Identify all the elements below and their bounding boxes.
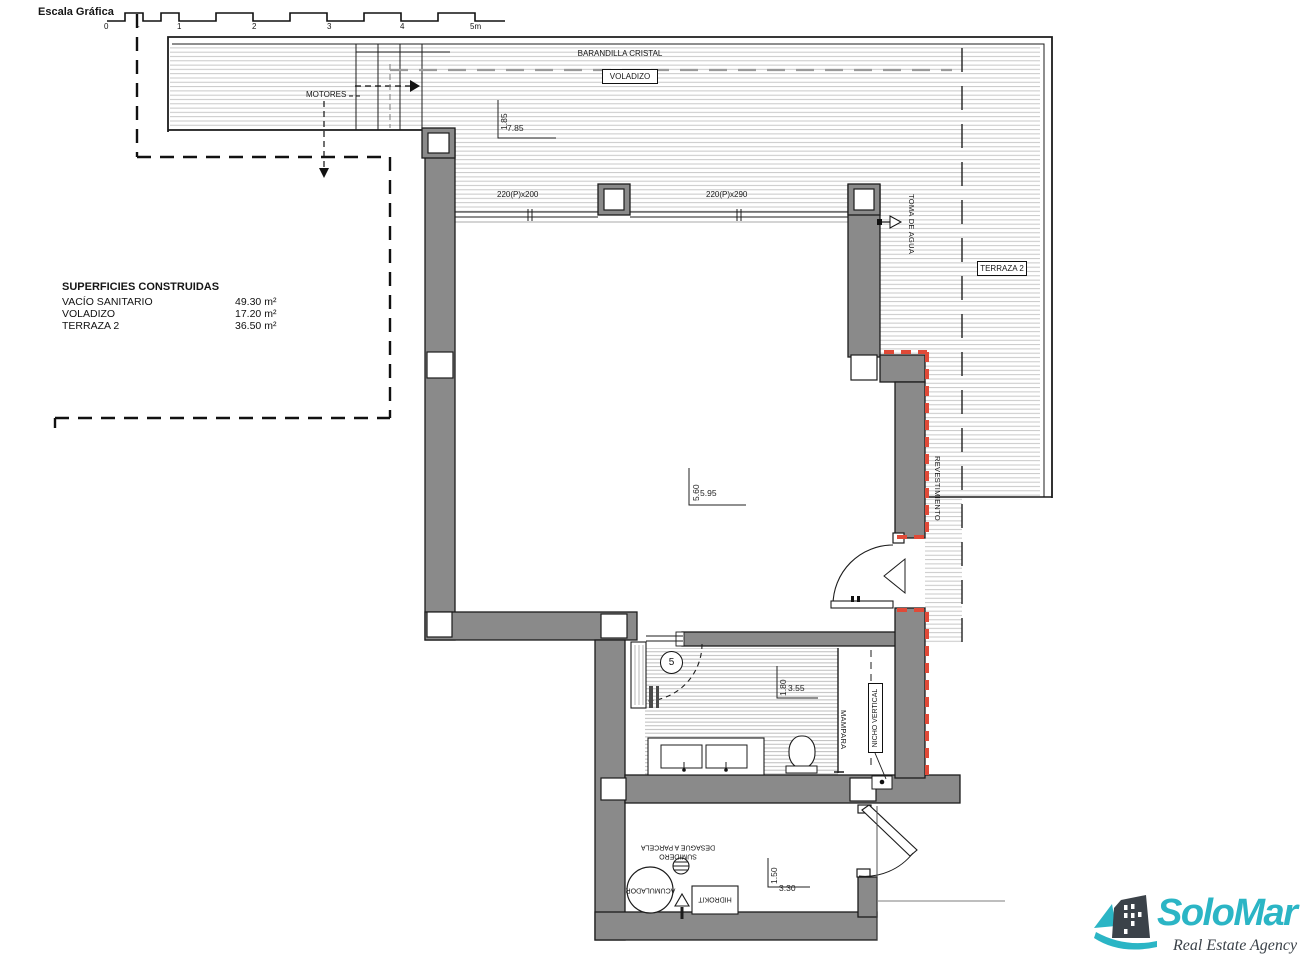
area-name: VOLADIZO xyxy=(62,308,115,320)
room-number-badge: 5 xyxy=(660,651,683,674)
area-value: 49.30 m² xyxy=(235,296,276,308)
logo-tagline: Real Estate Agency xyxy=(1173,938,1297,955)
sumidero-label: SUMIDERO xyxy=(628,852,728,859)
scale-bar xyxy=(107,13,505,21)
terraza-2-label: TERRAZA 2 xyxy=(977,261,1027,276)
window-right-label: 220(P)x290 xyxy=(706,191,747,199)
area-value: 17.20 m² xyxy=(235,308,276,320)
scale-tick-4: 4 xyxy=(400,23,404,31)
floorplan-page: Escala Gráfica 0 - 1 2 3 4 5m BARANDILLA… xyxy=(0,0,1300,969)
niche-marker-dot xyxy=(880,780,885,785)
scale-tick-half: - xyxy=(137,23,140,31)
voladizo-label: VOLADIZO xyxy=(602,69,658,84)
scale-tick-2: 2 xyxy=(252,23,256,31)
logo-building-icon xyxy=(1094,895,1157,950)
nicho-vertical-label: NICHO VERTICAL xyxy=(868,683,883,753)
revestimiento-label: REVESTIMIENTO xyxy=(933,456,941,521)
dim-main-horizontal: 5.95 xyxy=(700,489,717,498)
area-value: 36.50 m² xyxy=(235,320,276,332)
floorplan-linework xyxy=(0,0,1300,969)
acumulador-label: ACUMULADOR xyxy=(623,886,678,893)
scale-title: Escala Gráfica xyxy=(38,7,114,19)
area-name: VACÍO SANITARIO xyxy=(62,296,153,308)
scale-tick-5m: 5m xyxy=(470,23,481,31)
toma-de-agua-label: TOMA DE AGUA xyxy=(907,194,915,254)
logo-wordmark: SoloMar xyxy=(1157,894,1296,934)
barandilla-cristal-label: BARANDILLA CRISTAL xyxy=(555,50,685,58)
mampara-label: MAMPARA xyxy=(839,710,847,749)
scale-tick-3: 3 xyxy=(327,23,331,31)
dim-bath-vertical: 1.80 xyxy=(779,679,788,696)
dim-utility-vertical: 1.50 xyxy=(770,867,779,884)
desague-label: DESAGÜE A PARCELA xyxy=(628,843,728,850)
dim-bath-horizontal: 3.55 xyxy=(788,684,805,693)
area-name: TERRAZA 2 xyxy=(62,320,119,332)
dim-utility-horizontal: 3.30 xyxy=(779,884,796,893)
scale-tick-1: 1 xyxy=(177,23,181,31)
window-left-label: 220(P)x200 xyxy=(497,191,538,199)
motores-label: MOTORES xyxy=(306,91,346,99)
dim-terrace-horizontal: 7.85 xyxy=(507,124,524,133)
scale-tick-0: 0 xyxy=(104,23,108,31)
areas-table-title: SUPERFICIES CONSTRUIDAS xyxy=(62,282,219,294)
hidrokit-label: HIDROKIT xyxy=(695,895,735,902)
